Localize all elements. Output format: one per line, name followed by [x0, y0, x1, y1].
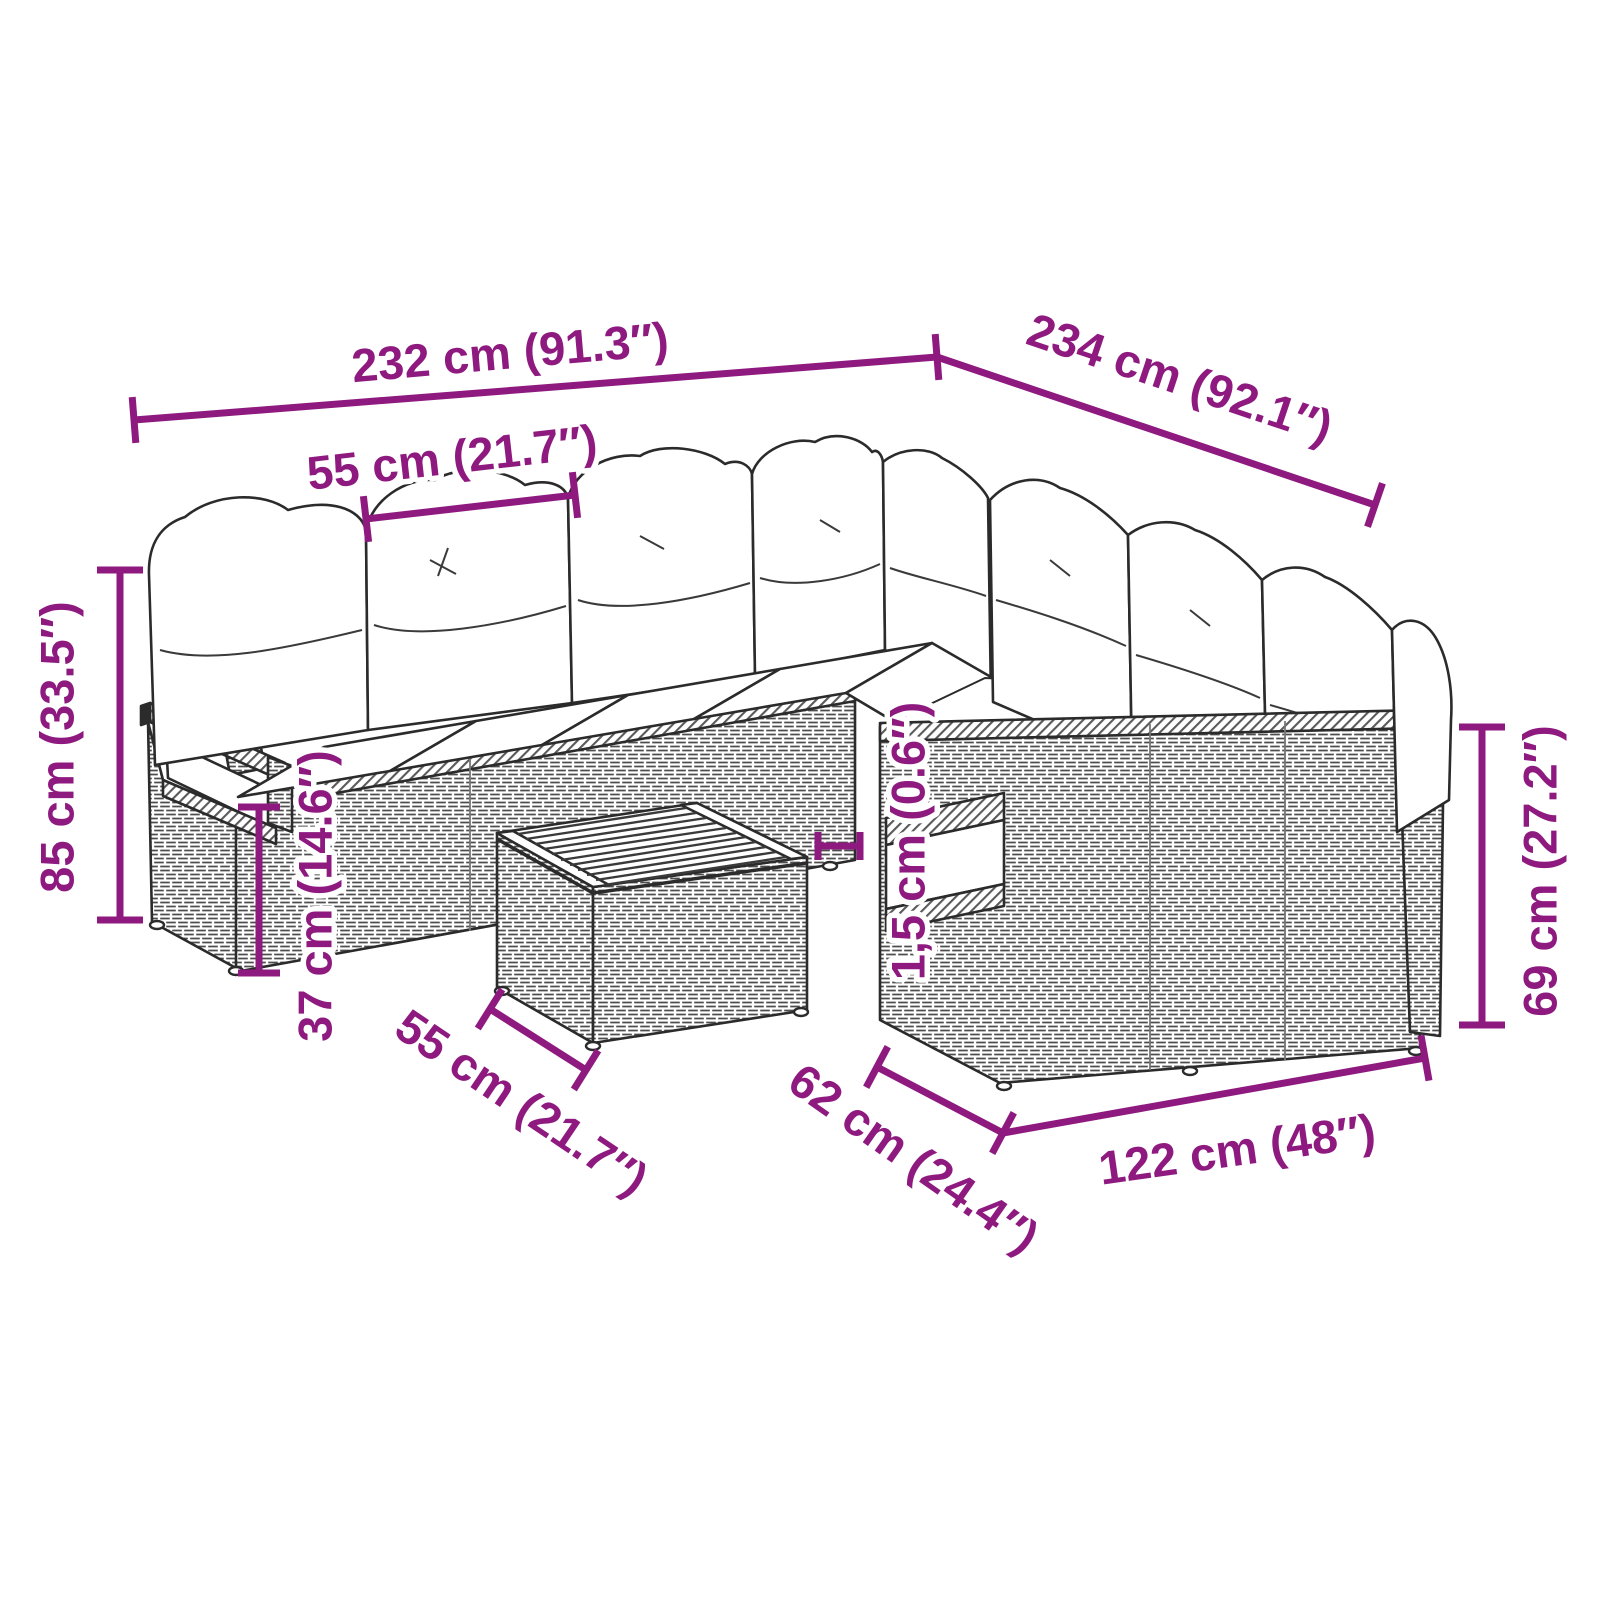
coffee-table: [497, 803, 807, 1043]
dim-armrest-height-line: [1459, 727, 1505, 1025]
dim-cushion-thickness-label: 1,5 cm (0.6″): [882, 702, 935, 981]
diagram-canvas: 232 cm (91.3″) 234 cm (92.1″) 55 cm (21.…: [0, 0, 1600, 1600]
dim-armrest-height-label: 69 cm (27.2″): [1514, 725, 1567, 1017]
dim-seat-height-label: 37 cm (14.6″): [289, 750, 342, 1042]
dim-right-sofa-width-label: 122 cm (48″): [1095, 1103, 1378, 1194]
dim-overall-height-label: 85 cm (33.5″): [31, 601, 84, 893]
dim-overall-height-line: [97, 570, 143, 920]
dim-total-depth-label: 234 cm (92.1″): [1021, 302, 1339, 453]
dimension-diagram: 232 cm (91.3″) 234 cm (92.1″) 55 cm (21.…: [0, 0, 1600, 1600]
